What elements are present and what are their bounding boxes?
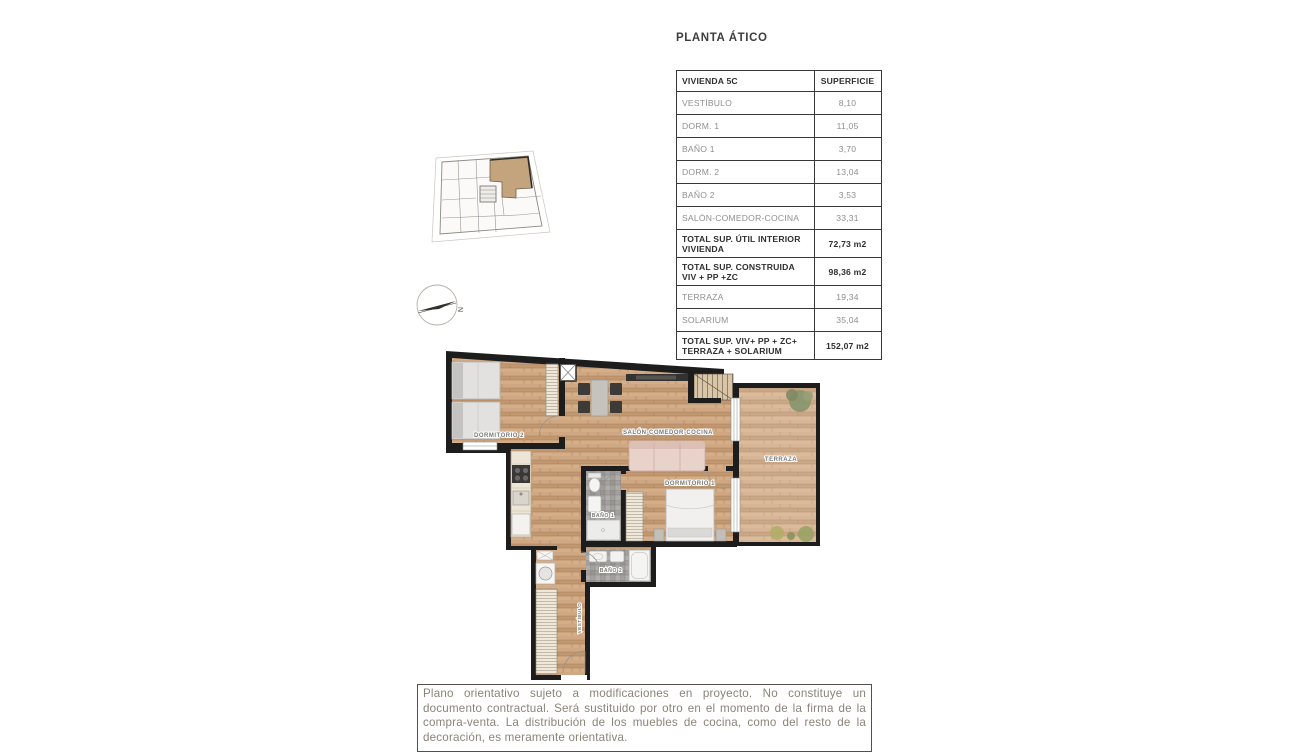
- page: PLANTA ÁTICO VIVIENDA 5C SUPERFICIE VEST…: [0, 0, 1290, 755]
- floor-plan: DORMITORIO 2 SALÓN-COMEDOR-COCINA TERRAZ…: [440, 345, 830, 685]
- areas-table: VIVIENDA 5C SUPERFICIE VESTÍBULO 8,10 DO…: [676, 70, 882, 360]
- shaft: [560, 364, 576, 381]
- compass: N: [408, 278, 470, 334]
- kitchen-counter: [511, 451, 531, 537]
- label-salon: SALÓN-COMEDOR-COCINA: [623, 428, 713, 436]
- table-row: SALÓN-COMEDOR-COCINA 33,31: [677, 206, 881, 229]
- north-arrow-icon: [418, 301, 456, 311]
- row-label: DORM. 1: [677, 115, 814, 137]
- row-label: BAÑO 1: [677, 138, 814, 160]
- table-row: VESTÍBULO 8,10: [677, 91, 881, 114]
- table-row-total: TOTAL SUP. ÚTIL INTERIOR VIVIENDA 72,73 …: [677, 229, 881, 257]
- key-plan: [428, 148, 558, 253]
- row-label: TERRAZA: [677, 286, 814, 308]
- vestibule-closet: [536, 589, 557, 674]
- row-value: 19,34: [814, 286, 880, 308]
- tv-unit: [626, 374, 688, 381]
- label-terraza: TERRAZA: [765, 457, 797, 463]
- compass-circle: [417, 285, 457, 325]
- row-label: DORM. 2: [677, 161, 814, 183]
- row-label: TOTAL SUP. CONSTRUIDA VIV + PP +ZC: [677, 258, 814, 285]
- label-bano2: BAÑO 2: [600, 567, 623, 574]
- row-label: TOTAL SUP. ÚTIL INTERIOR VIVIENDA: [677, 230, 814, 257]
- disclaimer-text: Plano orientativo sujeto a modificacione…: [423, 687, 866, 744]
- row-label: SALÓN-COMEDOR-COCINA: [677, 207, 814, 229]
- table-header-row: VIVIENDA 5C SUPERFICIE: [677, 71, 881, 91]
- table-header-unit: VIVIENDA 5C: [677, 71, 814, 91]
- row-value: 11,05: [814, 115, 880, 137]
- row-label: BAÑO 2: [677, 184, 814, 206]
- sofa: [629, 441, 705, 471]
- compass-north-label: N: [456, 307, 463, 312]
- table-row: SOLARIUM 35,04: [677, 308, 881, 331]
- page-title: PLANTA ÁTICO: [676, 32, 768, 44]
- row-value: 35,04: [814, 309, 880, 331]
- row-value: 72,73 m2: [814, 230, 880, 257]
- label-bano1: BAÑO 1: [592, 512, 615, 519]
- label-dormitorio2: DORMITORIO 2: [474, 433, 524, 439]
- table-row: BAÑO 1 3,70: [677, 137, 881, 160]
- table-row: TERRAZA 19,34: [677, 285, 881, 308]
- row-value: 33,31: [814, 207, 880, 229]
- label-dormitorio1: DORMITORIO 1: [665, 481, 715, 487]
- row-label: VESTÍBULO: [677, 92, 814, 114]
- dorm2-wardrobe: [546, 364, 558, 416]
- table-header-superficie: SUPERFICIE: [814, 71, 880, 91]
- row-value: 8,10: [814, 92, 880, 114]
- table-row-total: TOTAL SUP. CONSTRUIDA VIV + PP +ZC 98,36…: [677, 257, 881, 285]
- table-row: DORM. 2 13,04: [677, 160, 881, 183]
- row-value: 3,53: [814, 184, 880, 206]
- laundry: [536, 551, 555, 584]
- dorm1-wardrobe: [626, 492, 643, 541]
- table-row: DORM. 1 11,05: [677, 114, 881, 137]
- row-value: 3,70: [814, 138, 880, 160]
- disclaimer-box: Plano orientativo sujeto a modificacione…: [417, 684, 872, 752]
- table-row: BAÑO 2 3,53: [677, 183, 881, 206]
- row-label: SOLARIUM: [677, 309, 814, 331]
- row-value: 98,36 m2: [814, 258, 880, 285]
- row-value: 13,04: [814, 161, 880, 183]
- label-vestibulo: VESTÍBULO: [575, 603, 582, 634]
